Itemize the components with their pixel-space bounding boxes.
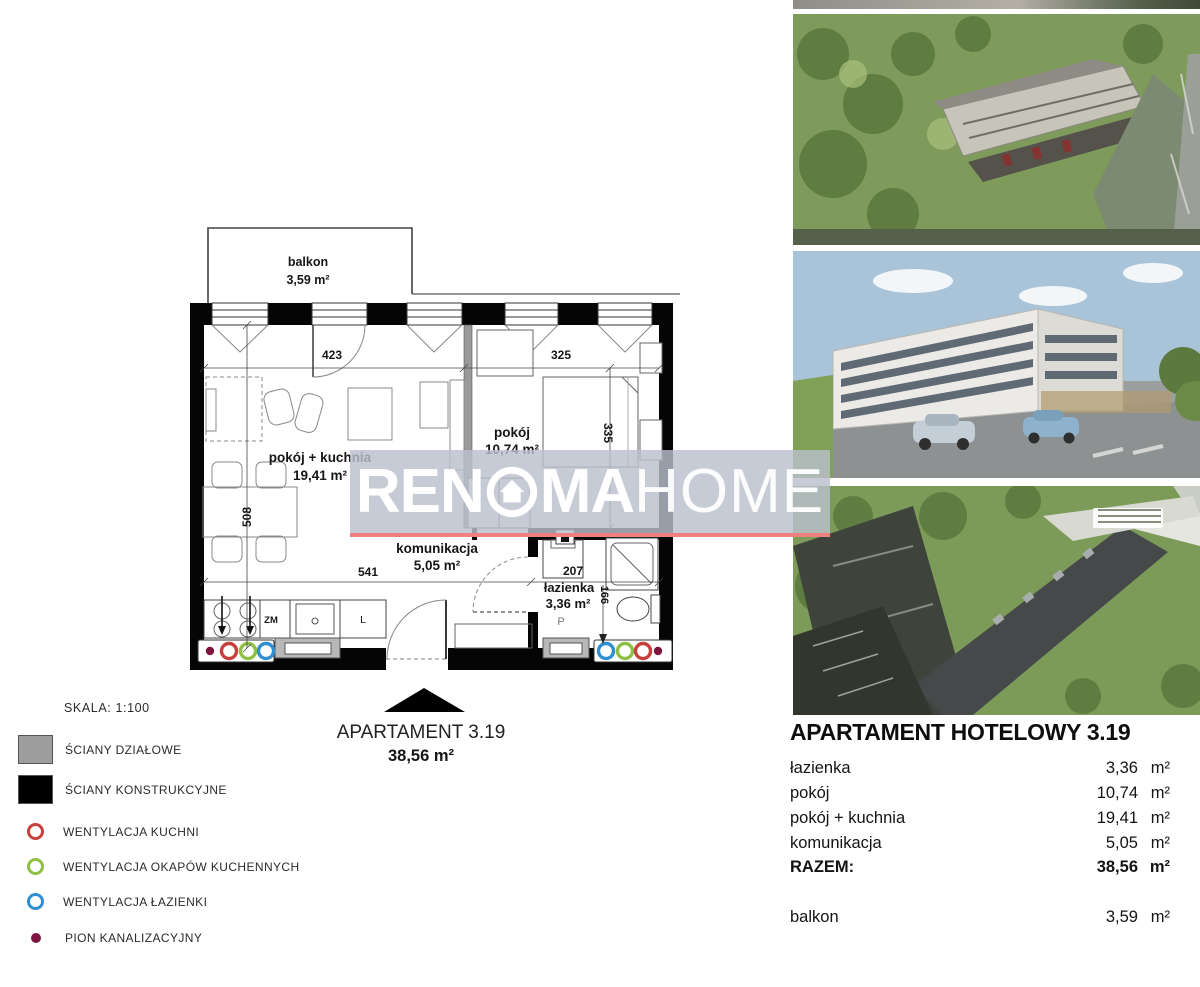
legend-item-sewage-stack: PION KANALIZACYJNY xyxy=(18,931,202,945)
kitchen-vent-ring xyxy=(27,823,44,840)
apartment-title: APARTAMENT 3.19 xyxy=(337,722,506,743)
legend-item-kitchen-vent: WENTYLACJA KUCHNI xyxy=(18,823,199,840)
vent-group-bath xyxy=(594,640,672,662)
balcony-area: 3,59 m² xyxy=(286,273,329,287)
photo-aerial-building-along-road xyxy=(793,486,1200,715)
entrance-arrow xyxy=(384,688,465,712)
summary-row-bedroom: pokój 10,74 m² xyxy=(790,784,1170,803)
dim-335: 335 xyxy=(601,423,615,443)
watermark-text: REN xyxy=(356,461,484,523)
dim-166: 166 xyxy=(598,586,610,604)
watermark-band: REN MA HOME xyxy=(350,450,830,533)
legend-label: PION KANALIZACYJNY xyxy=(65,931,202,945)
bath-area: 3,36 m² xyxy=(546,596,591,611)
hood-vent-ring xyxy=(27,858,44,875)
sewage-stack-dot xyxy=(206,647,214,655)
summary-row-hall: komunikacja 5,05 m² xyxy=(790,834,1170,853)
summary-row-bath: łazienka 3,36 m² xyxy=(790,759,1170,778)
area-summary: APARTAMENT HOTELOWY 3.19 łazienka 3,36 m… xyxy=(790,719,1170,746)
floor-plan: balkon 3,59 m² 423 325 508 335 541 207 1… xyxy=(0,0,700,790)
legend-label: WENTYLACJA ŁAZIENKI xyxy=(63,895,207,909)
living-room-area: 19,41 m² xyxy=(293,468,348,483)
bath-vent-ring xyxy=(27,893,44,910)
legend-item-bath-vent: WENTYLACJA ŁAZIENKI xyxy=(18,893,207,910)
summary-title: APARTAMENT HOTELOWY 3.19 xyxy=(790,719,1170,746)
sewage-stack-dot xyxy=(31,933,41,943)
dim-207: 207 xyxy=(563,564,583,578)
dishwasher-label: ZM xyxy=(264,615,278,626)
bath-label: łazienka xyxy=(544,580,595,595)
photo-street-white-building xyxy=(793,251,1200,478)
watermark-text-light: HOME xyxy=(634,461,824,523)
hall-area: 5,05 m² xyxy=(414,558,461,573)
flyer-page: balkon 3,59 m² 423 325 508 335 541 207 1… xyxy=(0,0,1200,987)
balcony-label: balkon xyxy=(288,255,328,269)
dim-508: 508 xyxy=(240,507,254,527)
summary-row-living: pokój + kuchnia 19,41 m² xyxy=(790,809,1170,828)
fridge-label: L xyxy=(360,614,366,626)
hall-label: komunikacja xyxy=(396,541,478,556)
watermark-underline xyxy=(350,533,830,537)
apartment-total-area: 38,56 m² xyxy=(388,747,455,765)
dim-541: 541 xyxy=(358,565,378,579)
summary-row-total: RAZEM: 38,56 m² xyxy=(790,858,1170,877)
dim-423: 423 xyxy=(322,348,342,362)
photo-strip-top xyxy=(793,0,1200,9)
vent-group-kitchen xyxy=(198,640,274,662)
dim-325: 325 xyxy=(551,348,571,362)
washer-label: P xyxy=(557,616,564,628)
bathroom-door xyxy=(473,557,528,612)
house-in-circle-icon xyxy=(486,466,538,518)
balcony-outline xyxy=(208,228,680,303)
watermark-text: MA xyxy=(540,461,634,523)
summary-row-balcony: balkon 3,59 m² xyxy=(790,908,1170,927)
sewage-stack-dot xyxy=(654,647,662,655)
kitchen-counter xyxy=(204,596,386,638)
legend-item-hood-vent: WENTYLACJA OKAPÓW KUCHENNYCH xyxy=(18,858,300,875)
bedroom-label: pokój xyxy=(494,425,530,440)
legend-label: WENTYLACJA OKAPÓW KUCHENNYCH xyxy=(63,860,300,874)
entrance-door xyxy=(386,600,448,659)
legend-label: WENTYLACJA KUCHNI xyxy=(63,825,199,839)
photo-aerial-triangular-building xyxy=(793,14,1200,245)
